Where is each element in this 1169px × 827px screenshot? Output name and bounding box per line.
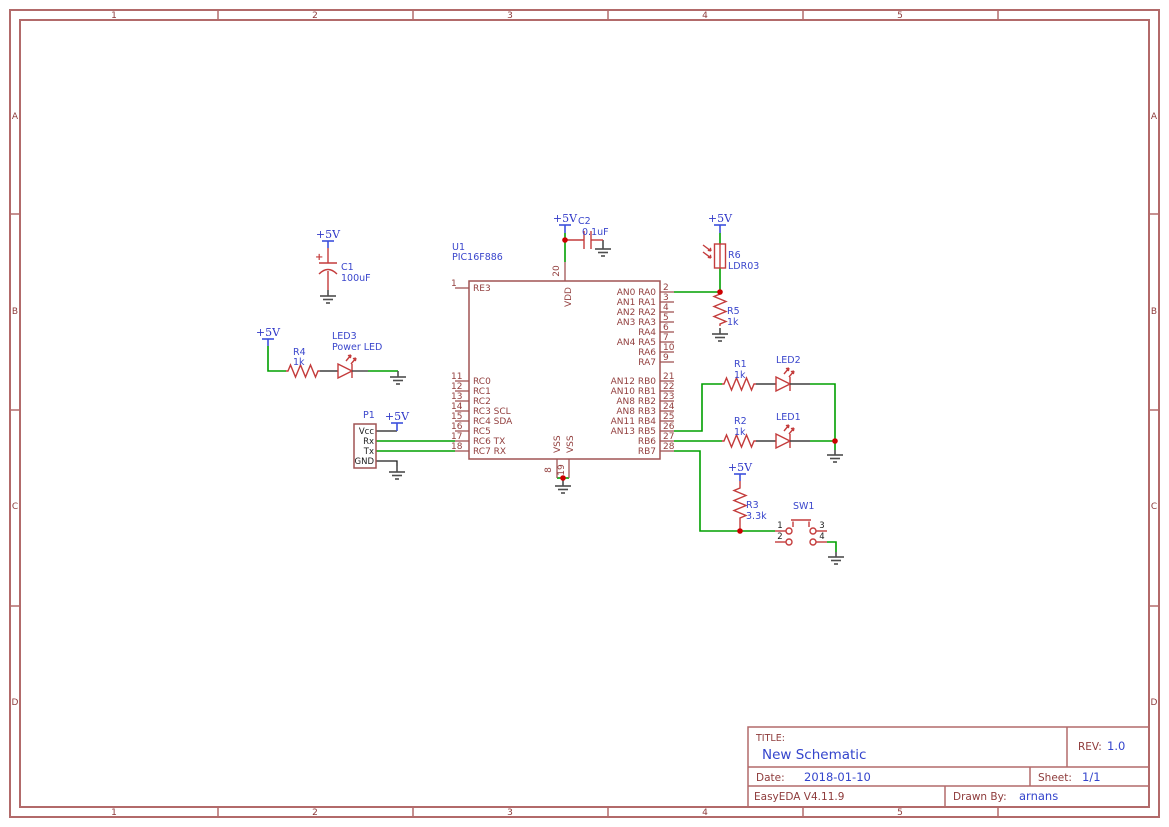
pin-number: 15: [451, 412, 462, 422]
designator[interactable]: R2: [734, 416, 747, 427]
designator[interactable]: R6: [728, 250, 741, 261]
pin-name: AN4 RA5: [617, 338, 656, 348]
net-label[interactable]: +5V: [553, 212, 578, 225]
pin-name: VDD: [564, 287, 574, 307]
pin-number: 26: [663, 422, 675, 432]
part-value[interactable]: 1k: [734, 370, 746, 381]
pin-name: Tx: [363, 447, 374, 457]
title-label: TITLE:: [755, 733, 785, 744]
title-block[interactable]: TITLE: New Schematic REV: 1.0 Date: 2018…: [748, 727, 1149, 807]
designator[interactable]: P1: [363, 410, 375, 421]
pin-number: 25: [663, 412, 674, 422]
pin-name: VSS: [553, 435, 563, 453]
pin-name: Vcc: [359, 427, 374, 437]
component-r5[interactable]: R5 1k: [714, 292, 740, 328]
pin-number: 10: [663, 343, 675, 353]
designator[interactable]: SW1: [793, 501, 814, 512]
frame-col-label: 3: [507, 808, 513, 818]
pin-name: AN8 RB3: [616, 407, 656, 417]
drawn-by-value[interactable]: arnans: [1019, 789, 1058, 803]
date-value[interactable]: 2018-01-10: [804, 770, 871, 784]
junction-dot: [737, 528, 743, 534]
pin-name: RC7 RX: [473, 447, 506, 457]
pin-number: 28: [663, 442, 675, 452]
pin-name: RC1: [473, 387, 491, 397]
pin-name: VSS: [566, 435, 576, 453]
net-label[interactable]: +5V: [708, 212, 733, 225]
switch-contact: [810, 528, 816, 534]
power-flag-r3[interactable]: +5V: [728, 461, 753, 481]
pin-number: 21: [663, 372, 674, 382]
designator[interactable]: LED2: [776, 355, 801, 366]
part-value[interactable]: 1k: [293, 357, 305, 368]
pin-number: 13: [451, 392, 462, 402]
pin-name: AN11 RB4: [611, 417, 657, 427]
part-value[interactable]: 1k: [734, 427, 746, 438]
power-flag-led3[interactable]: +5V: [256, 326, 281, 346]
wire[interactable]: [268, 346, 286, 371]
component-u1[interactable]: U1 PIC16F886 20 VDD 8 19 VSS VSS 1RE3 11…: [451, 242, 675, 478]
part-value[interactable]: PIC16F886: [452, 252, 503, 263]
component-r2[interactable]: R2 1k: [722, 416, 756, 447]
power-flag-vdd[interactable]: +5V: [553, 212, 578, 233]
pin-number: 3: [819, 521, 824, 531]
pin-number: 18: [451, 442, 463, 452]
power-flag-p1[interactable]: +5V: [385, 410, 410, 431]
pin-name: RC6 TX: [473, 437, 505, 447]
part-value[interactable]: 100uF: [341, 273, 371, 284]
led-emission-arrows-icon: [784, 425, 794, 434]
pin-name: AN0 RA0: [617, 288, 657, 298]
pin-name: RA4: [638, 328, 656, 338]
designator[interactable]: C1: [341, 262, 354, 273]
junction-dot: [560, 475, 566, 481]
pin-number: 12: [451, 382, 462, 392]
frame-col-label: 2: [312, 11, 318, 21]
pin-number: 9: [663, 353, 669, 363]
switch-contact: [786, 528, 792, 534]
pin-number: 2: [777, 532, 782, 542]
pin-name: AN2 RA2: [617, 308, 656, 318]
ground-icon[interactable]: [389, 466, 405, 479]
net-label[interactable]: +5V: [728, 461, 753, 474]
resistor-symbol[interactable]: [714, 292, 726, 326]
pin-number: 16: [451, 422, 463, 432]
frame-col-label: 4: [702, 11, 708, 21]
pin-name: AN13 RB5: [611, 427, 656, 437]
component-led2[interactable]: LED2: [756, 355, 810, 391]
led-emission-arrows-icon: [346, 355, 356, 364]
component-c1[interactable]: + C1 100uF: [315, 248, 371, 290]
pin-name: RC4 SDA: [473, 417, 513, 427]
component-sw1[interactable]: 1 2 3 4 SW1: [775, 501, 827, 545]
frame-row-label: A: [1151, 112, 1158, 122]
designator[interactable]: LED3: [332, 331, 357, 342]
pin-number: 3: [663, 293, 669, 303]
wire[interactable]: [810, 441, 835, 450]
pin-number: 4: [819, 532, 824, 542]
junction-dot: [717, 289, 723, 295]
pin-name: AN10 RB1: [611, 387, 656, 397]
sheet-value[interactable]: 1/1: [1082, 770, 1101, 784]
junction-dot: [562, 237, 568, 243]
part-value[interactable]: LDR03: [728, 261, 759, 272]
frame-row-label: B: [1151, 307, 1157, 317]
frame-col-label: 3: [507, 11, 513, 21]
pin-number: 1: [451, 279, 457, 289]
polarity-mark: +: [315, 252, 323, 263]
frame-row-label: C: [12, 502, 18, 512]
net-label[interactable]: +5V: [256, 326, 281, 339]
ground-icon[interactable]: [595, 240, 611, 256]
designator[interactable]: R3: [746, 500, 759, 511]
designator[interactable]: LED1: [776, 412, 801, 423]
ldr-light-arrows-icon: [703, 245, 711, 258]
schematic-sheet[interactable]: 1 2 3 4 5 1 2 3 4 5 A B C D A B C D TITL…: [0, 0, 1169, 827]
sheet-label: Sheet:: [1038, 772, 1072, 784]
pin-number: 14: [451, 402, 463, 412]
pin-number: 24: [663, 402, 675, 412]
pin-name: RC5: [473, 427, 491, 437]
led-symbol[interactable]: [776, 434, 790, 448]
pin-number: 19: [557, 464, 567, 476]
drawn-by-label: Drawn By:: [953, 791, 1007, 803]
pin-name: RA7: [638, 358, 656, 368]
pin-number: 6: [663, 323, 669, 333]
pin-name: RC0: [473, 377, 491, 387]
pin-name: Rx: [363, 437, 374, 447]
rev-value[interactable]: 1.0: [1107, 739, 1125, 753]
led-symbol[interactable]: [776, 377, 790, 391]
frame-row-label: B: [12, 307, 18, 317]
led-symbol[interactable]: [338, 364, 352, 378]
pin-number: 2: [663, 283, 669, 293]
ground-icon[interactable]: [712, 328, 728, 341]
ground-icon[interactable]: [320, 290, 336, 303]
designator[interactable]: C2: [578, 216, 591, 227]
designator[interactable]: R5: [727, 306, 740, 317]
ground-icon[interactable]: [828, 552, 844, 564]
frame-row-label: C: [1151, 502, 1157, 512]
pin-number: 27: [663, 432, 674, 442]
pin-name: AN12 RB0: [611, 377, 657, 387]
component-r4[interactable]: R4 1k: [286, 347, 320, 377]
pin-name: RC2: [473, 397, 491, 407]
component-r1[interactable]: R1 1k: [722, 359, 756, 390]
pin-name: RC3 SCL: [473, 407, 511, 417]
wire[interactable]: [376, 461, 397, 466]
frame-row-label: D: [12, 698, 19, 708]
wire[interactable]: [810, 384, 835, 441]
schematic-canvas: 1 2 3 4 5 1 2 3 4 5 A B C D A B C D TITL…: [0, 0, 1169, 827]
pin-number: 8: [544, 467, 554, 473]
part-value[interactable]: 0.1uF: [582, 227, 609, 238]
pin-name: AN8 RB2: [616, 397, 656, 407]
frame-row-label: A: [12, 112, 19, 122]
pin-name: AN1 RA1: [617, 298, 656, 308]
power-flag-c1[interactable]: +5V: [316, 228, 341, 248]
pin-number: 23: [663, 392, 674, 402]
pin-name: GND: [355, 457, 375, 467]
pin-number: 4: [663, 303, 669, 313]
pin-number: 5: [663, 313, 669, 323]
frame-col-label: 1: [111, 11, 117, 21]
ground-icon[interactable]: [390, 371, 406, 384]
ground-icon[interactable]: [827, 450, 843, 462]
tool-version: EasyEDA V4.11.9: [754, 791, 844, 803]
net-label[interactable]: +5V: [385, 410, 410, 423]
pin-name: RE3: [473, 284, 491, 294]
pin-number: 17: [451, 432, 462, 442]
power-flag-r6[interactable]: +5V: [708, 212, 733, 233]
pin-number: 1: [777, 521, 782, 531]
resistor-symbol[interactable]: [734, 486, 746, 520]
pin-number: 20: [552, 265, 562, 277]
junction-dot: [832, 438, 838, 444]
wire[interactable]: [674, 384, 722, 431]
pin-name: RB6: [638, 437, 656, 447]
frame-col-label: 1: [111, 808, 117, 818]
frame-col-label: 5: [897, 808, 903, 818]
rev-label: REV:: [1078, 741, 1102, 753]
pin-number: 22: [663, 382, 674, 392]
component-r6[interactable]: R6 LDR03: [703, 244, 759, 272]
switch-contact: [786, 539, 792, 545]
component-p1[interactable]: P1 Vcc Rx Tx GND: [354, 410, 376, 468]
pin-name: RB7: [638, 447, 656, 457]
date-label: Date:: [756, 772, 785, 784]
frame-row-label: D: [1151, 698, 1158, 708]
component-led1[interactable]: LED1: [756, 412, 810, 448]
part-value[interactable]: Power LED: [332, 342, 382, 353]
part-value[interactable]: 1k: [727, 317, 739, 328]
led-emission-arrows-icon: [784, 368, 794, 377]
wire[interactable]: [827, 542, 836, 552]
pin-number: 11: [451, 372, 462, 382]
pin-name: RA6: [638, 348, 656, 358]
frame-col-label: 4: [702, 808, 708, 818]
net-label[interactable]: +5V: [316, 228, 341, 241]
pin-name: AN3 RA3: [617, 318, 656, 328]
pin-number: 7: [663, 333, 669, 343]
schematic-title[interactable]: New Schematic: [762, 747, 866, 763]
switch-contact: [810, 539, 816, 545]
designator[interactable]: R1: [734, 359, 747, 370]
frame-col-label: 5: [897, 11, 903, 21]
part-value[interactable]: 3.3k: [746, 511, 767, 522]
frame-col-label: 2: [312, 808, 318, 818]
component-r3[interactable]: R3 3.3k: [734, 481, 767, 531]
